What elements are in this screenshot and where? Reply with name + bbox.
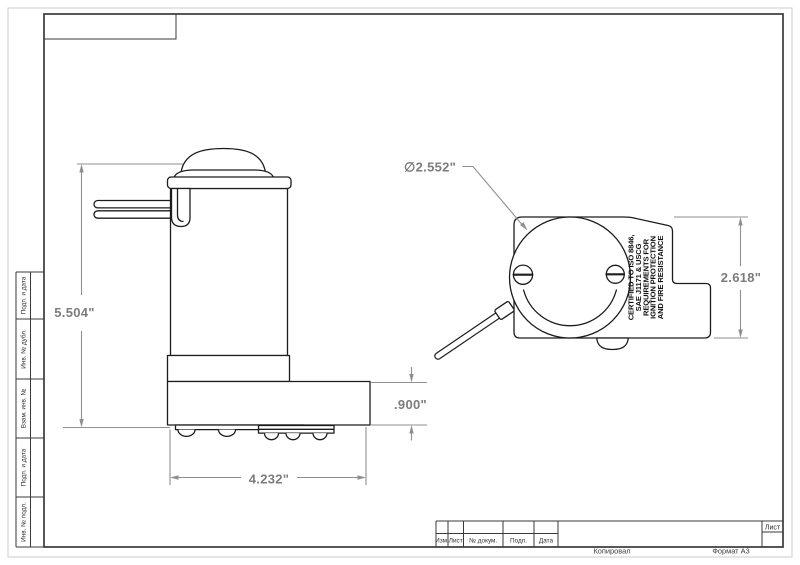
dim-text: 2.618" [721,270,762,285]
title-block-col-podp: Подп. [510,538,527,545]
mounting-foot [178,430,195,437]
screw-left [513,265,532,284]
stamp-label: Инв. № дубл. [20,329,28,369]
stamp-label: Взам. инв. № [21,389,28,429]
top-left-stamp-box [44,14,176,39]
pump-base [168,382,371,426]
mounting-foot [219,430,236,437]
dim-text: 5.504" [54,305,95,320]
title-block-col-list: Лист [449,538,463,545]
bottom-boss [597,338,629,350]
motor-cap-flange [168,177,292,189]
dim-text: ∅2.552" [404,160,456,175]
pump-adapter [168,356,290,382]
stamp-label: Подп. и дата [21,276,28,314]
dim-text: 4.232" [249,472,290,487]
wire-lead-end [438,301,515,356]
title-block-col-izm: Изм. [435,538,449,545]
dim-head-diameter: ∅2.552" [404,160,528,231]
mounting-foot [265,433,279,440]
title-block: Изм. Лист № докум. Подп. Дата Лист [435,521,783,547]
end-view: CERTIFIED TO ISO 8846, SAE J1171 & USCG … [438,217,711,356]
side-view [94,149,370,440]
title-block-col-docnum: № докум. [469,538,497,545]
mounting-foot [286,433,300,440]
drawing-sheet: Подп. и дата Инв. № дубл. Взам. инв. № П… [0,0,800,565]
footer-copied-label: Копировал [593,547,630,556]
stamp-label: Инв. № подл. [21,502,28,542]
title-block-col-data: Дата [539,538,554,545]
mounting-foot [313,433,327,440]
footer-format-label: Формат А3 [712,547,749,556]
dim-text: .900" [394,397,427,412]
wire-lead [94,201,174,208]
stamp-label: Подп. и дата [21,448,28,486]
screw-right [606,265,624,283]
certification-text: CERTIFIED TO ISO 8846, SAE J1171 & USCG … [627,235,666,321]
title-block-sheet-label: Лист [765,525,781,532]
dim-base-height: .900" [371,367,427,441]
wire-lead [94,211,174,218]
left-margin-stamp: Подп. и дата Инв. № дубл. Взам. инв. № П… [16,272,44,547]
cert-text-line: AND FIRE RESISTANCE [656,236,665,320]
engineering-drawing: Подп. и дата Инв. № дубл. Взам. инв. № П… [0,0,800,565]
